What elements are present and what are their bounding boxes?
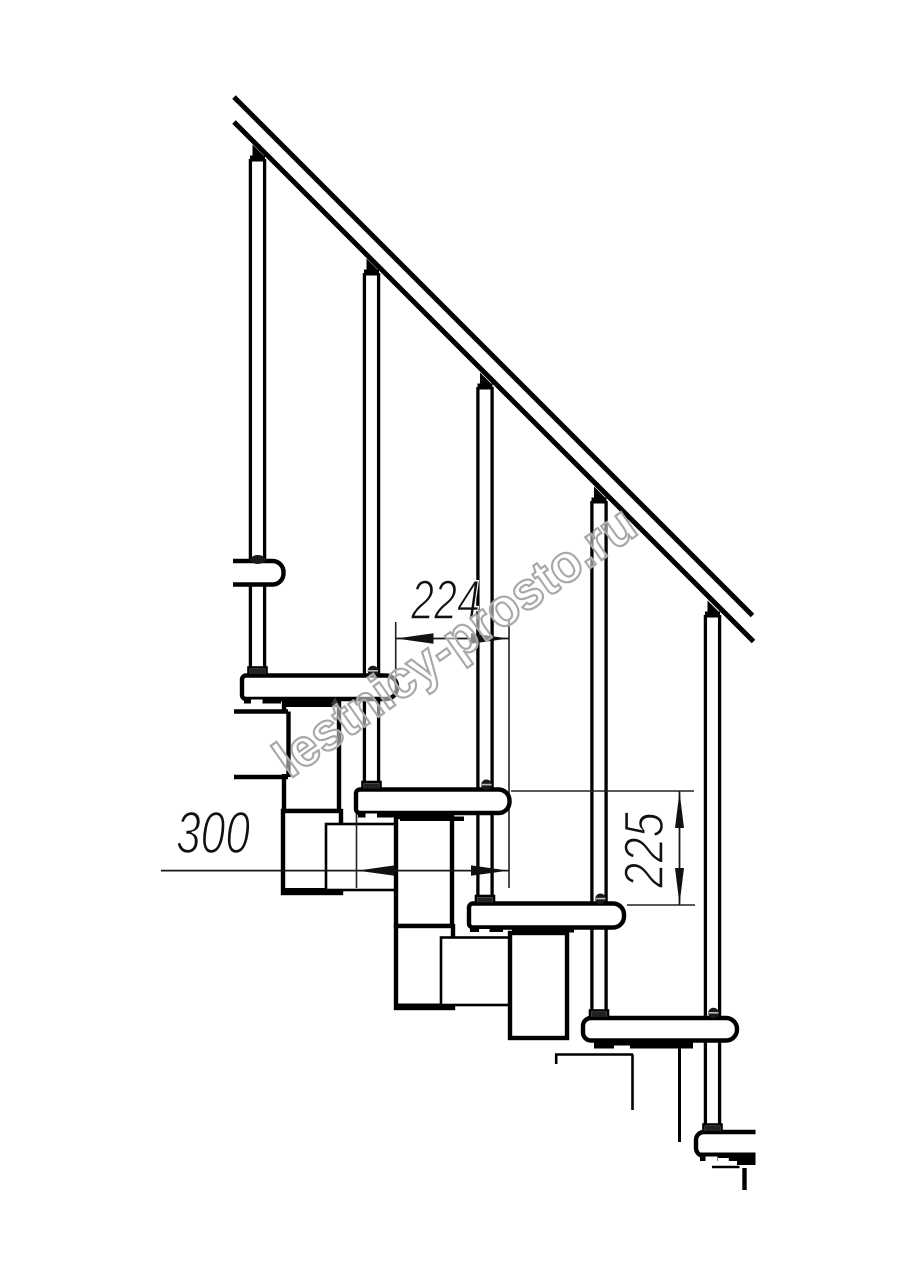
svg-text:300: 300 [176,800,250,866]
svg-text:225: 225 [613,812,675,889]
